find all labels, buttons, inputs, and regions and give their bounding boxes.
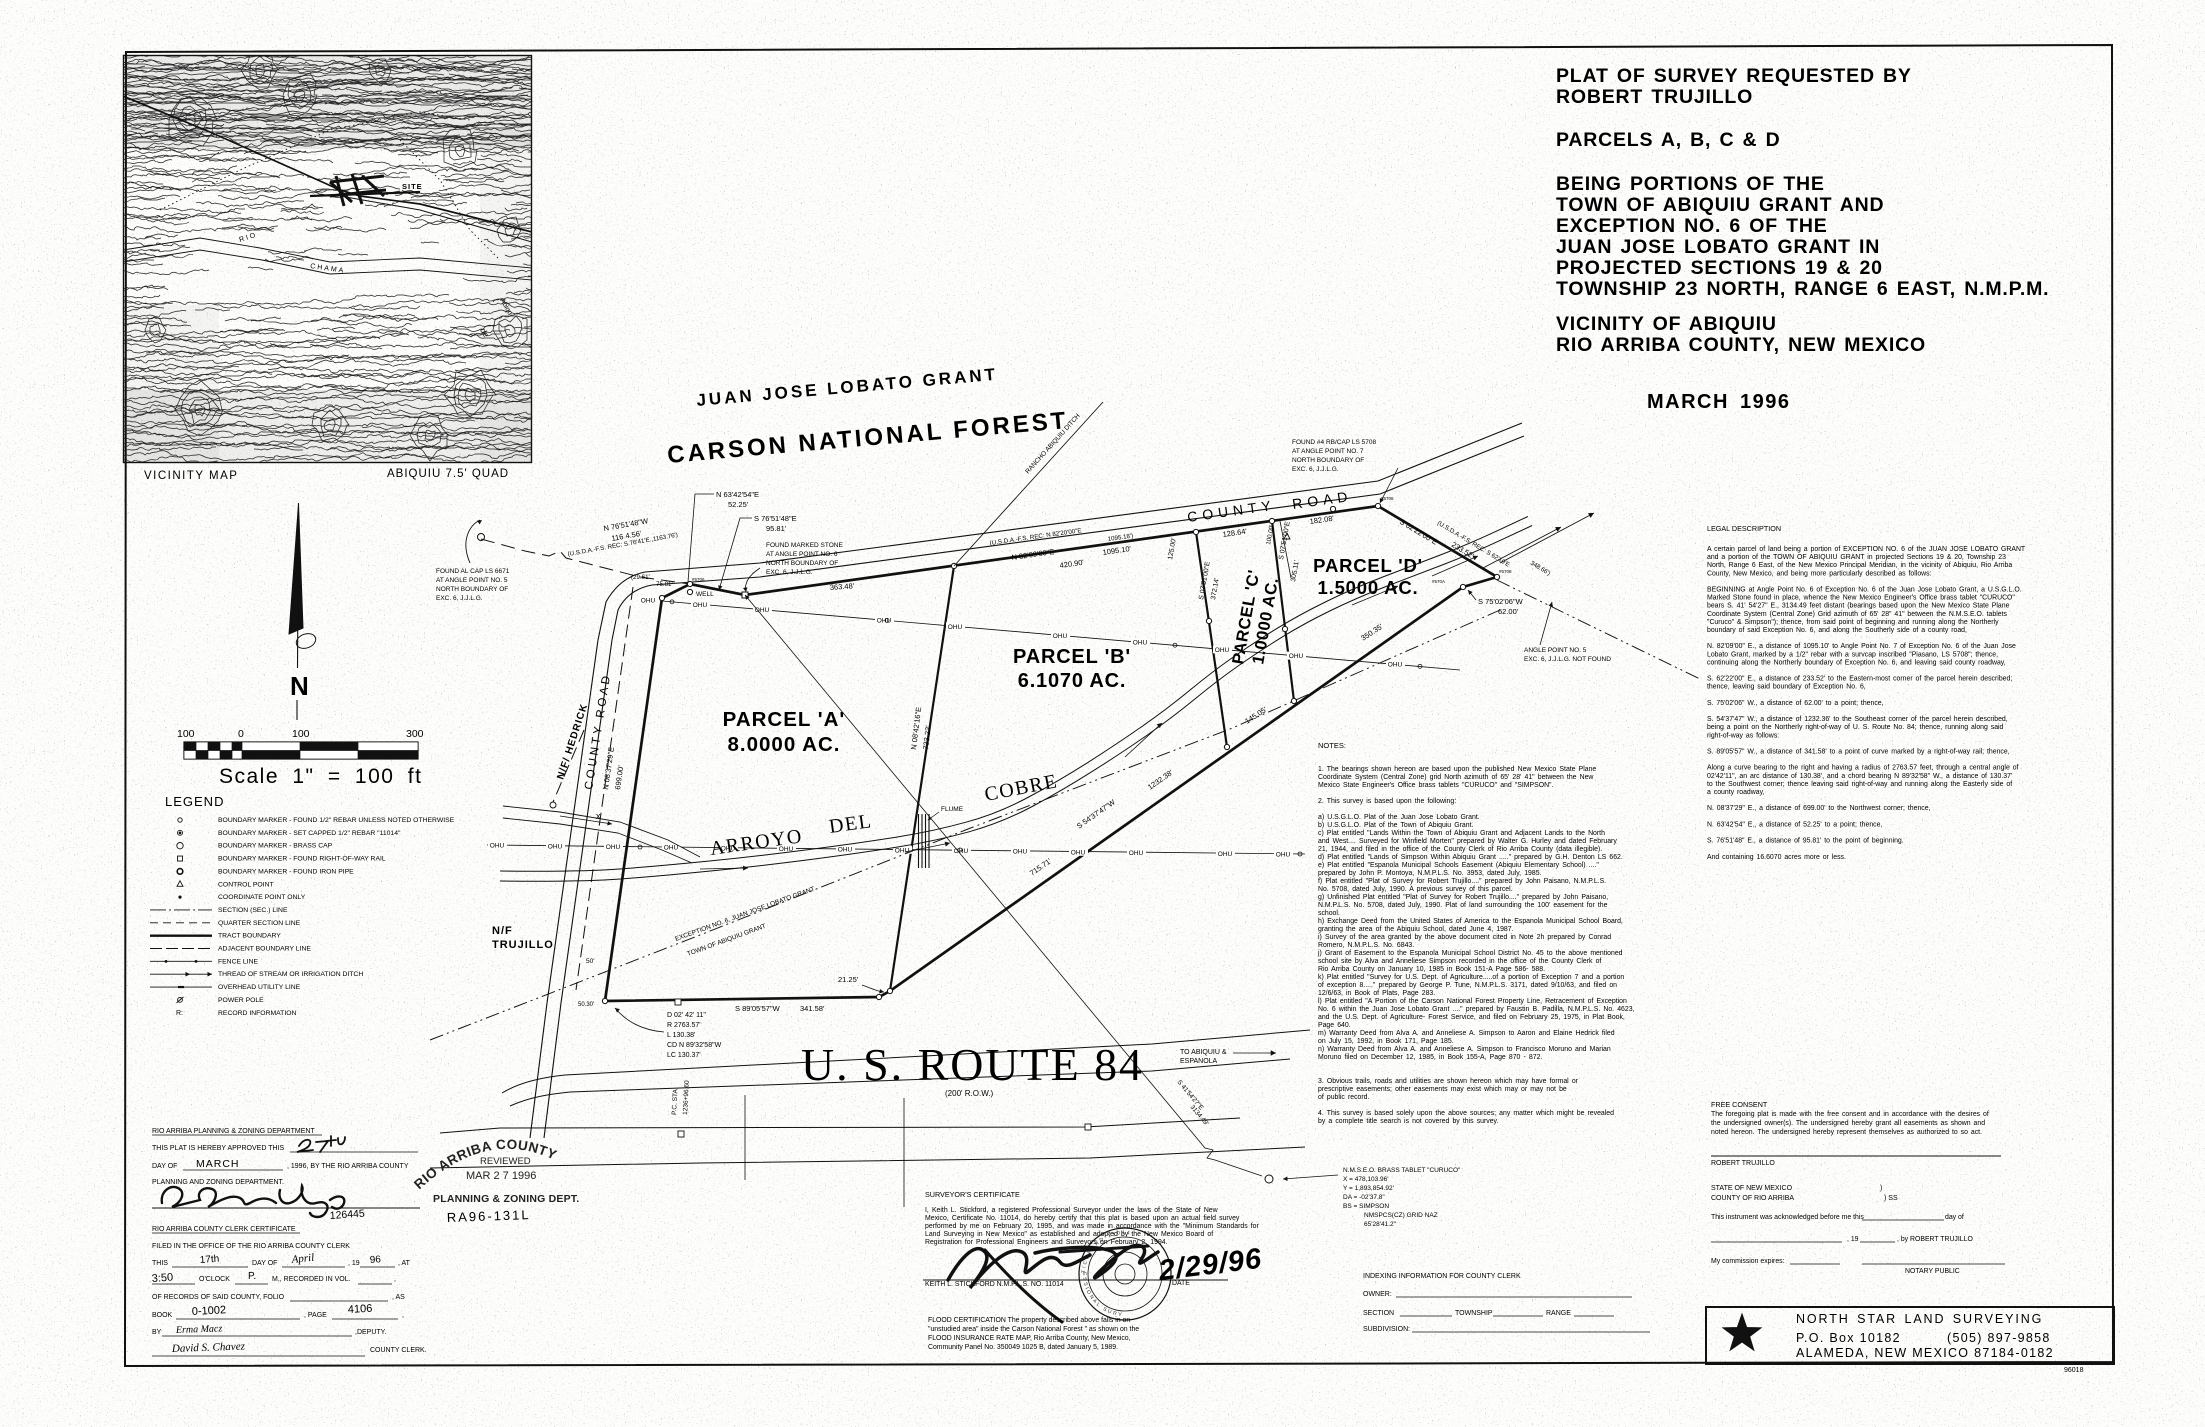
svg-text:RIO ARRIBA PLANNING & ZONING D: RIO ARRIBA PLANNING & ZONING DEPARTMENT [152, 1128, 315, 1135]
svg-text:NORTH BOUNDARY OF: NORTH BOUNDARY OF [436, 586, 508, 593]
svg-text:c) Plat entitled "Lands Within: c) Plat entitled "Lands Within the Town … [1318, 830, 1605, 837]
svg-text:and a portion of the TOWN OF A: and a portion of the TOWN OF ABIQUIU GRA… [1707, 554, 2006, 561]
svg-text:BS = SIMPSON: BS = SIMPSON [1343, 1203, 1389, 1210]
svg-text:Mexico, Certificate No. 11014,: Mexico, Certificate No. 11014, do hereby… [925, 1215, 1240, 1222]
svg-text:(200' R.O.W.): (200' R.O.W.) [945, 1089, 994, 1098]
svg-text:My commission expires:: My commission expires: [1711, 1258, 1785, 1265]
svg-text:REVIEWED: REVIEWED [480, 1156, 531, 1167]
svg-text:n) Warranty Deed from Alva A.: n) Warranty Deed from Alva A. and Anneli… [1318, 1046, 1611, 1053]
svg-text:I, Keith L. Stickford, a regis: I, Keith L. Stickford, a registered Prof… [925, 1207, 1218, 1214]
svg-text:TRACT BOUNDARY: TRACT BOUNDARY [218, 933, 281, 940]
svg-text:PARCEL 'B': PARCEL 'B' [1013, 646, 1131, 668]
svg-text:NORTH STAR LAND SURVEYING: NORTH STAR LAND SURVEYING [1796, 1312, 2043, 1326]
svg-text:(505) 897-9858: (505) 897-9858 [1947, 1331, 2051, 1345]
svg-text:ROBERT TRUJILLO: ROBERT TRUJILLO [1711, 1160, 1775, 1167]
svg-text:FOUND MARKED STONE: FOUND MARKED STONE [766, 542, 843, 549]
svg-text:SECTION: SECTION [1363, 1310, 1394, 1317]
svg-text:No. 5708, dated July, 1990. A: No. 5708, dated July, 1990. A previous s… [1318, 886, 1513, 893]
svg-text:S. 89'05'57" W., a distance of: S. 89'05'57" W., a distance of 341.58' t… [1707, 749, 2010, 756]
svg-text:LEGEND: LEGEND [165, 794, 224, 809]
svg-text:OHU: OHU [877, 618, 892, 625]
svg-text:95.81': 95.81' [766, 524, 787, 533]
svg-text:100: 100 [177, 728, 195, 740]
svg-text:school site by Alva and Anneli: school site by Alva and Anneliese Simpso… [1318, 958, 1601, 965]
svg-text:BOUNDARY MARKER - FOUND RIGHT-: BOUNDARY MARKER - FOUND RIGHT-OF-WAY RAI… [218, 856, 386, 863]
svg-text:OHU: OHU [948, 624, 963, 631]
svg-text:VICINITY OF ABIQUIU: VICINITY OF ABIQUIU [1556, 313, 1777, 335]
svg-text:CD N 89'32'58"W: CD N 89'32'58"W [667, 1042, 722, 1049]
svg-text:Marked Stone found in place, w: Marked Stone found in place, whence the … [1707, 595, 2015, 602]
svg-text:l) Plat entitled "A Portion of: l) Plat entitled "A Portion of the Carso… [1318, 998, 1627, 1005]
svg-text:341.58': 341.58' [800, 1004, 825, 1013]
svg-text:, AS: , AS [392, 1294, 405, 1301]
svg-text:RA96-131L: RA96-131L [447, 1207, 531, 1225]
svg-text:NOTES:: NOTES: [1318, 741, 1346, 750]
svg-text:OHU: OHU [755, 607, 770, 614]
svg-text:Coordinate System (Central Zon: Coordinate System (Central Zone) grid No… [1318, 774, 1593, 781]
svg-text:TOWN OF ABIQUIU GRANT AND: TOWN OF ABIQUIU GRANT AND [1556, 194, 1884, 216]
svg-text:#5708: #5708 [1499, 569, 1512, 574]
svg-text:U. S. ROUTE 84: U. S. ROUTE 84 [801, 1039, 1144, 1090]
svg-text:P.O. Box 10182: P.O. Box 10182 [1796, 1331, 1901, 1345]
svg-text:, PAGE: , PAGE [304, 1312, 327, 1319]
svg-text:LC 130.37': LC 130.37' [667, 1052, 701, 1059]
svg-text:0-1002: 0-1002 [192, 1304, 227, 1318]
svg-text:PARCEL 'A': PARCEL 'A' [723, 708, 846, 731]
svg-text:of exception 8....." prepared: of exception 8....." prepared by George … [1318, 982, 1617, 989]
svg-text:FILED IN THE OFFICE OF THE RIO: FILED IN THE OFFICE OF THE RIO ARRIBA CO… [152, 1243, 350, 1250]
svg-text:300: 300 [406, 728, 424, 740]
svg-text:S 89'05'57"W: S 89'05'57"W [735, 1004, 781, 1013]
svg-text:17th: 17th [199, 1254, 219, 1266]
svg-text:TOWNSHIP: TOWNSHIP [1455, 1310, 1493, 1317]
svg-text:BOUNDARY MARKER - BRASS CAP: BOUNDARY MARKER - BRASS CAP [218, 843, 333, 850]
svg-text:prepared by John P. Montoya, N: prepared by John P. Montoya, N.M.P.L.S. … [1318, 870, 1542, 877]
svg-text:MAR 2 7 1996: MAR 2 7 1996 [466, 1170, 536, 1182]
svg-text:6.1070 AC.: 6.1070 AC. [1018, 670, 1126, 692]
svg-text:S 76'51'48"E: S 76'51'48"E [754, 514, 797, 523]
svg-text:21, 1944, and filed in the off: 21, 1944, and filed in the office of the… [1318, 846, 1602, 853]
svg-text:RIO ARRIBA COUNTY, NEW MEXICO: RIO ARRIBA COUNTY, NEW MEXICO [1556, 334, 1926, 356]
svg-text:h) Exchange Deed from the Unit: h) Exchange Deed from the United States … [1318, 918, 1623, 925]
svg-text:OF RECORDS OF SAID COUNTY, FOL: OF RECORDS OF SAID COUNTY, FOLIO [152, 1294, 285, 1301]
svg-text:O'CLOCK: O'CLOCK [199, 1276, 230, 1283]
svg-text:EXC. 6, J.J.L.G.: EXC. 6, J.J.L.G. [436, 595, 483, 602]
svg-text:The foregoing plat is made wit: The foregoing plat is made with the free… [1711, 1111, 1989, 1118]
svg-text:1. The bearings shown hereon: 1. The bearings shown hereon are based u… [1318, 766, 1596, 773]
svg-text:A certain parcel of land being: A certain parcel of land being a portion… [1707, 546, 2026, 553]
svg-text:OHU: OHU [641, 597, 656, 604]
svg-text:21.25': 21.25' [838, 975, 859, 984]
svg-text:day of: day of [1945, 1214, 1964, 1221]
svg-text:THIS: THIS [152, 1260, 168, 1267]
svg-text:4106: 4106 [348, 1303, 373, 1316]
svg-text:BOUNDARY MARKER - FOUND 1/2" R: BOUNDARY MARKER - FOUND 1/2" REBAR UNLES… [218, 817, 455, 824]
svg-text:P.: P. [248, 1271, 256, 1282]
svg-text:P.C. STA.: P.C. STA. [671, 1087, 679, 1115]
svg-text:North, Range 6 East, of the Ne: North, Range 6 East, of the New Mexico P… [1707, 562, 2012, 569]
svg-text:02'42'11", an arc distance of: 02'42'11", an arc distance of 130.38', a… [1707, 773, 2012, 780]
svg-text:N: N [290, 671, 309, 701]
svg-text:12/6/63, in Book of Plats, Pag: 12/6/63, in Book of Plats, Page 283. [1318, 990, 1435, 997]
svg-text:ESPANOLA: ESPANOLA [1180, 1058, 1218, 1065]
svg-text:April: April [290, 1252, 315, 1266]
svg-text:PLANNING & ZONING DEPT.: PLANNING & ZONING DEPT. [433, 1193, 579, 1205]
svg-text:TOWNSHIP 23 NORTH, RANGE 6 EAS: TOWNSHIP 23 NORTH, RANGE 6 EAST, N.M.P.M… [1556, 278, 2049, 300]
svg-text:SURVEYOR'S CERTIFICATE: SURVEYOR'S CERTIFICATE [925, 1190, 1020, 1199]
svg-text:to the Southwest corner; then: to the Southwest corner; thence leaving … [1707, 781, 2012, 788]
svg-text:Mexico State Engineer's Office: Mexico State Engineer's Office brass tab… [1318, 782, 1553, 789]
svg-text:thence, leaving said boundary: thence, leaving said boundary of Excepti… [1707, 684, 1866, 691]
svg-text:50': 50' [586, 958, 594, 965]
svg-text:OHU: OHU [1218, 851, 1233, 858]
svg-text:100: 100 [292, 728, 310, 740]
svg-text:OHU: OHU [548, 843, 563, 850]
svg-text:performed by me on February 20: performed by me on February 20, 1995, an… [925, 1223, 1260, 1230]
svg-text:DAY OF: DAY OF [152, 1163, 177, 1170]
svg-text:NMSPCS(CZ) GRID NAZ: NMSPCS(CZ) GRID NAZ [1364, 1212, 1438, 1219]
svg-text:Rio Arriba County on January 1: Rio Arriba County on January 10, 1985 in… [1318, 966, 1545, 973]
svg-text:PARCELS A, B, C & D: PARCELS A, B, C & D [1556, 129, 1781, 151]
svg-text:k) Plat entitled "Survey for U: k) Plat entitled "Survey for U.S. Dept. … [1318, 974, 1624, 981]
svg-text:PROJECTED SECTIONS 19 & 20: PROJECTED SECTIONS 19 & 20 [1556, 257, 1883, 279]
svg-text:NOTARY PUBLIC: NOTARY PUBLIC [1905, 1268, 1960, 1275]
svg-text:PLAT OF SURVEY REQUESTED BY: PLAT OF SURVEY REQUESTED BY [1556, 65, 1912, 87]
svg-text:Scale 1" = 100 ft: Scale 1" = 100 ft [219, 765, 422, 788]
svg-text:M., RECORDED IN VOL.: M., RECORDED IN VOL. [272, 1276, 351, 1283]
svg-text:i) Survey of the area granted: i) Survey of the area granted by the abo… [1318, 934, 1611, 941]
svg-text:PARCEL 'D': PARCEL 'D' [1313, 555, 1423, 576]
svg-text:65'28'41.2": 65'28'41.2" [1364, 1221, 1397, 1228]
svg-text:#5706: #5706 [692, 577, 705, 582]
svg-text:ROBERT TRUJILLO: ROBERT TRUJILLO [1556, 86, 1753, 108]
svg-text:Community Panel No. 350049 102: Community Panel No. 350049 1025 B, dated… [928, 1344, 1118, 1351]
svg-text:96: 96 [369, 1254, 381, 1266]
svg-text:prescriptive easements; other: prescriptive easements; other easements … [1318, 1086, 1567, 1093]
svg-text:KEITH L. STICKFORD N.M.P.L.S: KEITH L. STICKFORD N.M.P.L.S. NO. 11014 [925, 1281, 1064, 1288]
svg-text:, 19: , 19 [348, 1260, 360, 1267]
svg-text:52.25': 52.25' [728, 500, 749, 509]
svg-text:e) Plat entitled "Espanola Mun: e) Plat entitled "Espanola Municipal Sch… [1318, 862, 1599, 869]
svg-text:N 63'42'54"E: N 63'42'54"E [716, 490, 759, 499]
svg-text:on July 15, 1992, in Book 171,: on July 15, 1992, in Book 171, Page 185. [1318, 1038, 1454, 1045]
svg-text:g) Unfinished Plat entitled "P: g) Unfinished Plat entitled "Plat of Sur… [1318, 894, 1608, 901]
svg-text:boundary of said Exception No.: boundary of said Exception No. 6, and al… [1707, 627, 1967, 634]
svg-text:"unstudied area" inside the Ca: "unstudied area" inside the Carson Natio… [928, 1326, 1139, 1333]
svg-text:,: , [394, 1276, 396, 1283]
svg-text:OHU: OHU [1388, 662, 1403, 669]
svg-text:S 75'02'06"W: S 75'02'06"W [1478, 597, 1524, 606]
svg-text:, 1996, BY THE RIO ARRIBA COUN: , 1996, BY THE RIO ARRIBA COUNTY [287, 1163, 409, 1170]
svg-text:EXC. 6, J.J.L.G.: EXC. 6, J.J.L.G. [1292, 466, 1339, 473]
svg-text:OHU: OHU [1215, 647, 1230, 654]
svg-text:ABIQUIU 7.5' QUAD: ABIQUIU 7.5' QUAD [387, 468, 509, 480]
svg-text:OHU: OHU [1053, 633, 1068, 640]
svg-text:SITE: SITE [402, 182, 423, 191]
svg-text:continuing along the Northerly: continuing along the Northerly boundary … [1707, 659, 2006, 666]
svg-text:JUAN JOSE LOBATO GRANT IN: JUAN JOSE LOBATO GRANT IN [1556, 236, 1880, 258]
svg-text:#570A: #570A [1432, 579, 1445, 584]
svg-text:RIO ARRIBA COUNTY CLERK CERTIF: RIO ARRIBA COUNTY CLERK CERTIFICATE [152, 1226, 296, 1233]
svg-text:X = 478,103.96': X = 478,103.96' [1343, 1176, 1389, 1183]
svg-text:COORDINATE POINT ONLY: COORDINATE POINT ONLY [218, 894, 306, 901]
svg-text:FLUME: FLUME [941, 806, 964, 813]
svg-text:3:50: 3:50 [151, 1272, 173, 1285]
svg-text:SUBDIVISION:: SUBDIVISION: [1363, 1326, 1410, 1333]
svg-text:BY: BY [152, 1329, 162, 1336]
svg-text:, AT: , AT [398, 1260, 411, 1267]
svg-text:Moruno filed on December 12, 1: Moruno filed on December 12, 1985, in Bo… [1318, 1054, 1542, 1061]
svg-text:AT ANGLE POINT NO. 6: AT ANGLE POINT NO. 6 [766, 551, 838, 558]
svg-text:OWNER:: OWNER: [1363, 1291, 1392, 1298]
svg-text:CONTROL POINT: CONTROL POINT [218, 881, 274, 888]
svg-text:Along a curve bearing to the r: Along a curve bearing to the right and h… [1707, 765, 2019, 772]
svg-text:N.M.S.E.O. BRASS TABLET "CURUC: N.M.S.E.O. BRASS TABLET "CURUCO" [1343, 1167, 1461, 1174]
svg-text:OHU: OHU [1133, 640, 1148, 647]
svg-text:FREE CONSENT: FREE CONSENT [1711, 1100, 1768, 1109]
svg-text:OHU: OHU [1276, 852, 1291, 859]
svg-text:D 02' 42' 11": D 02' 42' 11" [667, 1012, 706, 1019]
svg-text:FENCE LINE: FENCE LINE [218, 958, 259, 965]
svg-text:COUNTY CLERK.: COUNTY CLERK. [370, 1347, 427, 1354]
svg-text:"Curuco" & Simpson"); thence,: "Curuco" & Simpson"); thence, from said … [1707, 619, 1999, 626]
svg-text:OHU: OHU [838, 847, 853, 854]
svg-text:#5706: #5706 [1381, 496, 1394, 501]
svg-text:Land Surveying in New Mexico": Land Surveying in New Mexico" as establi… [925, 1231, 1213, 1238]
svg-text:noted hereon. The undersigne: noted hereon. The undersigned hereby rep… [1711, 1129, 1982, 1136]
svg-text:x: x [596, 811, 601, 821]
svg-text:OVERHEAD UTILITY LINE: OVERHEAD UTILITY LINE [218, 984, 301, 991]
svg-text:R:: R: [176, 1010, 183, 1017]
svg-text:3. Obvious trails, roads and: 3. Obvious trails, roads and utilities a… [1318, 1078, 1579, 1085]
svg-text:OHU: OHU [664, 845, 679, 852]
svg-text:Coordinate System (Central Zon: Coordinate System (Central Zone) Grid az… [1707, 611, 2007, 618]
svg-text:L 130.38': L 130.38' [667, 1032, 695, 1039]
svg-text:f) Plat entitled "Plat of Surv: f) Plat entitled "Plat of Survey for Rob… [1318, 878, 1606, 885]
svg-text:bears S. 41' 54'27" E., 3134.4: bears S. 41' 54'27" E., 3134.49 feet dis… [1707, 603, 2010, 610]
svg-text:the undersigned owner(s). Th: the undersigned owner(s). The undersigne… [1711, 1120, 1985, 1127]
svg-text:BOUNDARY MARKER - FOUND IRON P: BOUNDARY MARKER - FOUND IRON PIPE [218, 868, 354, 875]
svg-text:Romero, N.M.P.L.S. No. 6843.: Romero, N.M.P.L.S. No. 6843. [1318, 942, 1414, 949]
svg-text:62.00': 62.00' [1498, 607, 1519, 616]
svg-text:FOUND AL CAP LS 6671: FOUND AL CAP LS 6671 [436, 568, 510, 575]
svg-text:RECORD INFORMATION: RECORD INFORMATION [218, 1010, 297, 1017]
svg-text:OHU: OHU [1071, 849, 1086, 856]
svg-text:FLOOD INSURANCE RATE MAP, Rio: FLOOD INSURANCE RATE MAP, Rio Arriba Cou… [928, 1335, 1131, 1342]
svg-text:2. This survey is based upon: 2. This survey is based upon the followi… [1318, 798, 1456, 805]
svg-text:N. 63'42'54" E., a distance of: N. 63'42'54" E., a distance of 52.25' to… [1707, 821, 1882, 828]
svg-text:NORTH BOUNDARY OF: NORTH BOUNDARY OF [1292, 457, 1364, 464]
svg-text:TO ABIQUIU &: TO ABIQUIU & [1180, 1049, 1227, 1056]
svg-text:ANGLE POINT NO. 5: ANGLE POINT NO. 5 [1524, 647, 1587, 654]
svg-text:right-of-way as follows:: right-of-way as follows: [1707, 732, 1779, 739]
svg-text:N/F: N/F [492, 925, 513, 937]
svg-text:OHU: OHU [606, 844, 621, 851]
svg-text:0: 0 [238, 728, 244, 740]
svg-text:And containing 16.6070 acres m: And containing 16.6070 acres more or les… [1707, 854, 1846, 861]
svg-text:BOOK: BOOK [152, 1312, 173, 1319]
svg-text:, by ROBERT TRUJILLO: , by ROBERT TRUJILLO [1897, 1236, 1973, 1243]
svg-text:NORTH BOUNDARY OF: NORTH BOUNDARY OF [766, 560, 838, 567]
svg-text:N.M.P.L.S. No. 5708, dated Jul: N.M.P.L.S. No. 5708, dated July, 1990. P… [1318, 902, 1608, 909]
svg-text:ALAMEDA, NEW MEXICO 87184-018: ALAMEDA, NEW MEXICO 87184-0182 [1796, 1346, 2054, 1360]
svg-text:d) Plat entitled "Lands of Si: d) Plat entitled "Lands of Simpson Withi… [1318, 854, 1623, 861]
svg-text:STATE OF NEW MEXICO: STATE OF NEW MEXICO [1711, 1185, 1793, 1192]
svg-text:AT ANGLE POINT NO. 5: AT ANGLE POINT NO. 5 [436, 577, 508, 584]
svg-text:Y = 1,893,854.92': Y = 1,893,854.92' [1343, 1185, 1394, 1192]
svg-text:S. 76'51'48" E., a distance of: S. 76'51'48" E., a distance of 95.81' to… [1707, 838, 1904, 845]
svg-text:75.81': 75.81' [656, 581, 673, 588]
svg-text:Lobato Grant, marked by a 1/2": Lobato Grant, marked by a 1/2" rebar wit… [1707, 651, 1998, 658]
svg-text:) SS: ) SS [1884, 1195, 1898, 1202]
svg-text:,: , [402, 1312, 404, 1319]
svg-text:8.0000 AC.: 8.0000 AC. [728, 733, 841, 756]
svg-text:and the U.S. Dept. of Agricult: and the U.S. Dept. of Agriculture- Fores… [1318, 1014, 1625, 1021]
svg-text:EXC. 6, J.J.L.G. NOT FOUND: EXC. 6, J.J.L.G. NOT FOUND [1524, 656, 1611, 663]
svg-text:N. 08'37'29" E., a distance of: N. 08'37'29" E., a distance of 699.00' t… [1707, 805, 1931, 812]
svg-text:S. 54'37'47" W., a distance of: S. 54'37'47" W., a distance of 1232.36' … [1707, 716, 2008, 723]
svg-text:OHU: OHU [1013, 849, 1028, 856]
svg-text:, 19: , 19 [1847, 1236, 1859, 1243]
svg-text:(29.61': (29.61' [631, 574, 650, 581]
svg-text:No. 6 within the Juan Jose Lob: No. 6 within the Juan Jose Lobato Grant … [1318, 1006, 1635, 1013]
svg-text:DAY OF: DAY OF [252, 1260, 277, 1267]
svg-text:INDEXING INFORMATION FOR COUNT: INDEXING INFORMATION FOR COUNTY CLERK [1363, 1273, 1521, 1280]
svg-text:QUARTER SECTION LINE: QUARTER SECTION LINE [218, 920, 301, 927]
svg-text:R 2763.57': R 2763.57' [667, 1022, 701, 1029]
svg-text:BEING PORTIONS OF THE: BEING PORTIONS OF THE [1556, 173, 1825, 195]
svg-text:granting the area of the Abiqu: granting the area of the Abiquiu School,… [1318, 926, 1514, 933]
svg-text:a county roadway,: a county roadway, [1707, 789, 1764, 796]
svg-text:EXCEPTION NO. 6 OF THE: EXCEPTION NO. 6 OF THE [1556, 215, 1828, 237]
svg-text:OHU: OHU [490, 843, 505, 850]
svg-text:96018: 96018 [2064, 1367, 2084, 1374]
svg-text:S. 62'22'00" E., a distance of: S. 62'22'00" E., a distance of 233.52' t… [1707, 676, 2012, 683]
svg-text:THREAD OF STREAM OR IRRIGATION: THREAD OF STREAM OR IRRIGATION DITCH [218, 971, 363, 978]
svg-text:FOUND #4 RB/CAP LS 5708: FOUND #4 RB/CAP LS 5708 [1292, 439, 1376, 446]
svg-text:,DEPUTY.: ,DEPUTY. [355, 1329, 386, 1336]
svg-text:by a complete title search is: by a complete title search is not covere… [1318, 1118, 1498, 1125]
svg-text:50.30': 50.30' [578, 1002, 594, 1008]
svg-text:m) Warranty Deed from Alva A.: m) Warranty Deed from Alva A. and Anneli… [1318, 1030, 1615, 1037]
svg-text:BOUNDARY MARKER - SET CAPPED 1: BOUNDARY MARKER - SET CAPPED 1/2" REBAR … [218, 830, 401, 837]
svg-text:LEGAL DESCRIPTION: LEGAL DESCRIPTION [1707, 524, 1781, 533]
svg-text:ADJACENT BOUNDARY LINE: ADJACENT BOUNDARY LINE [218, 946, 311, 953]
svg-text:of public record.: of public record. [1318, 1094, 1370, 1101]
svg-text:THIS PLAT IS HEREBY APPROVED T: THIS PLAT IS HEREBY APPROVED THIS [152, 1145, 284, 1152]
svg-text:POWER POLE: POWER POLE [218, 997, 264, 1004]
svg-text:County, New Mexico, and being: County, New Mexico, and being more parti… [1707, 570, 1932, 577]
svg-text:): ) [1880, 1185, 1882, 1192]
svg-text:MARCH: MARCH [196, 1158, 240, 1170]
svg-text:DA = -02'37.8": DA = -02'37.8" [1343, 1194, 1385, 1201]
svg-text:Erma Macz: Erma Macz [175, 1323, 223, 1336]
svg-text:BEGINNING at Angle Point No. 6: BEGINNING at Angle Point No. 6 of Except… [1707, 587, 2022, 594]
svg-text:OHU: OHU [1129, 850, 1144, 857]
svg-text:and West.... Surveyed for Winf: and West.... Surveyed for Winfield Morte… [1318, 838, 1617, 845]
svg-text:N. 82'09'00" E., a distance of: N. 82'09'00" E., a distance of 1095.10' … [1707, 643, 2016, 650]
svg-text:AT ANGLE POINT NO. 7: AT ANGLE POINT NO. 7 [1292, 448, 1364, 455]
svg-text:EXC. 6, J.J.L.G.: EXC. 6, J.J.L.G. [766, 569, 813, 576]
svg-text:MARCH 1996: MARCH 1996 [1647, 391, 1790, 413]
svg-text:OHU: OHU [693, 602, 708, 609]
svg-text:SECTION (SEC.) LINE: SECTION (SEC.) LINE [218, 907, 288, 914]
svg-text:FLOOD CERTIFICATION The pro: FLOOD CERTIFICATION The property describ… [928, 1317, 1130, 1324]
svg-text:b) U.S.G.L.O. Plat of the Town: b) U.S.G.L.O. Plat of the Town of Abiqui… [1318, 822, 1473, 829]
svg-text:TRUJILLO: TRUJILLO [492, 939, 554, 951]
svg-text:OHU: OHU [1289, 653, 1304, 660]
svg-text:school.: school. [1318, 910, 1340, 917]
svg-text:being a point on the Northerly: being a point on the Northerly right-of-… [1707, 724, 2004, 731]
svg-text:363.48': 363.48' [830, 581, 856, 592]
svg-text:COUNTY OF RIO ARRIBA: COUNTY OF RIO ARRIBA [1711, 1195, 1794, 1202]
svg-text:RANGE: RANGE [1546, 1310, 1571, 1317]
svg-text:WELL: WELL [696, 591, 714, 598]
svg-text:4. This survey is based solel: 4. This survey is based solely upon the … [1318, 1110, 1614, 1117]
svg-text:a) U.S.G.L.O. Plat of the Juan: a) U.S.G.L.O. Plat of the Juan Jose Loba… [1318, 814, 1480, 821]
svg-text:126445: 126445 [329, 1208, 365, 1222]
svg-text:S. 75'02'06" W., a distance of: S. 75'02'06" W., a distance of 62.00' to… [1707, 700, 1884, 707]
svg-text:VICINITY MAP: VICINITY MAP [144, 470, 238, 482]
svg-text:j) Grant of Easement to the Es: j) Grant of Easement to the Espanola Mun… [1317, 950, 1623, 957]
svg-text:This instrument was acknowledg: This instrument was acknowledged before … [1711, 1214, 1864, 1221]
svg-text:PLANNING AND ZONING DEPARTMENT: PLANNING AND ZONING DEPARTMENT. [152, 1179, 284, 1186]
svg-text:Page 640.: Page 640. [1318, 1022, 1351, 1029]
